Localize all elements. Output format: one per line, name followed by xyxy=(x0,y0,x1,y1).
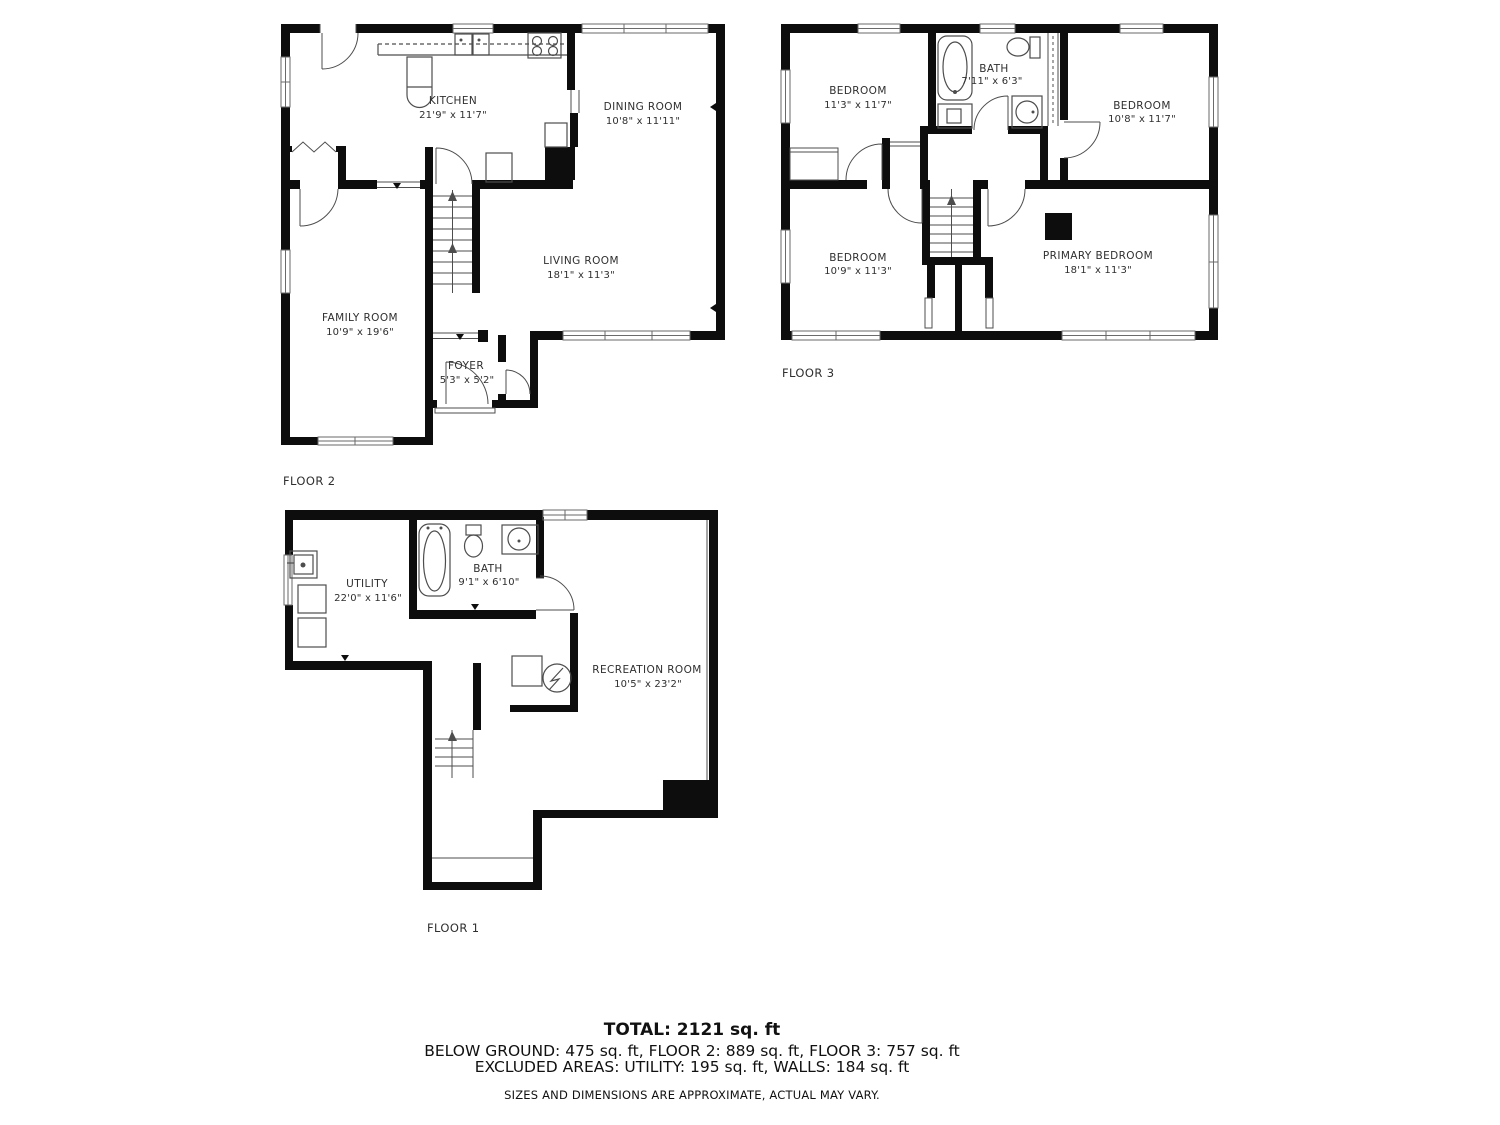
door-arc-bedroom-bottom-left xyxy=(888,189,922,223)
room-dims-bedroom-2: 10'8" x 11'7" xyxy=(1108,114,1176,125)
room-dims-living-room: 18'1" x 11'3" xyxy=(547,270,615,281)
door-arc-bedroom-top-left xyxy=(846,144,882,180)
accordion-closet-doors xyxy=(292,142,336,152)
room-label-family-room: FAMILY ROOM xyxy=(322,312,398,324)
chimney-floor2 xyxy=(545,147,575,180)
floor-2-walls xyxy=(281,24,725,445)
stairs-up-arrow xyxy=(448,243,457,253)
dryer-icon xyxy=(298,618,326,647)
sink-icon xyxy=(502,525,538,554)
counter-icon xyxy=(545,123,567,147)
room-dims-kitchen: 21'9" x 11'7" xyxy=(419,110,487,121)
door-arc-stair-hall xyxy=(436,148,472,184)
water-heater-icon xyxy=(543,664,571,692)
bathtub-icon xyxy=(938,36,972,100)
room-label-recreation-room: RECREATION ROOM xyxy=(592,664,701,676)
room-label-dining-room: DINING ROOM xyxy=(604,101,683,113)
floor-2-label: FLOOR 2 xyxy=(283,474,335,488)
room-label-bath-3: BATH xyxy=(979,63,1008,75)
room-dims-foyer: 5'3" x 5'2" xyxy=(440,375,495,386)
stairs-up-arrow xyxy=(448,731,457,741)
floor-3-stairs xyxy=(930,189,973,257)
room-label-primary-bedroom: PRIMARY BEDROOM xyxy=(1043,250,1153,262)
furnace-icon xyxy=(512,656,542,686)
door-arc-primary-bedroom xyxy=(988,189,1025,226)
summary-total: TOTAL: 2121 sq. ft xyxy=(0,1020,1384,1040)
hall-closet-front xyxy=(890,142,920,146)
bedroom-closet xyxy=(790,148,838,180)
summary-excluded-areas: EXCLUDED AREAS: UTILITY: 195 sq. ft, WAL… xyxy=(0,1058,1384,1076)
door-arc-bedroom-right xyxy=(1064,122,1100,158)
floor-3-plan: BEDROOM 11'3" x 11'7" BATH 7'11" x 6'3" … xyxy=(781,24,1218,380)
room-dims-bedroom-3: 10'9" x 11'3" xyxy=(824,266,892,277)
room-label-bath-1: BATH xyxy=(473,563,502,575)
summary-disclaimer: SIZES AND DIMENSIONS ARE APPROXIMATE, AC… xyxy=(0,1088,1384,1102)
floor-1-label: FLOOR 1 xyxy=(427,921,479,935)
floorplan-page: KITCHEN 21'9" x 11'7" DINING ROOM 10'8" … xyxy=(0,0,1500,1125)
room-dims-primary-bedroom: 18'1" x 11'3" xyxy=(1064,265,1132,276)
room-dims-recreation-room: 10'5" x 23'2" xyxy=(614,679,682,690)
washer-icon xyxy=(298,585,326,613)
toilet-icon xyxy=(1007,37,1040,58)
floor-3-label: FLOOR 3 xyxy=(782,366,834,380)
bathtub-icon xyxy=(419,524,450,596)
chimney-floor1 xyxy=(663,780,718,818)
door-arc-kitchen-entry xyxy=(322,33,358,69)
closet-door-panel xyxy=(986,298,993,328)
toilet-icon xyxy=(465,525,483,557)
sink-icon xyxy=(1012,96,1042,128)
room-dims-utility: 22'0" x 11'6" xyxy=(334,593,402,604)
vanity-icon xyxy=(938,104,972,128)
door-arc-bath xyxy=(974,96,1008,130)
room-label-bedroom-1: BEDROOM xyxy=(829,85,887,97)
room-label-bedroom-2: BEDROOM xyxy=(1113,100,1171,112)
room-label-utility: UTILITY xyxy=(346,578,388,590)
floorplan-canvas: KITCHEN 21'9" x 11'7" DINING ROOM 10'8" … xyxy=(0,0,1500,1125)
floor-2-plan: KITCHEN 21'9" x 11'7" DINING ROOM 10'8" … xyxy=(281,24,725,488)
room-dims-bedroom-1: 11'3" x 11'7" xyxy=(824,100,892,111)
room-dims-bath-3: 7'11" x 6'3" xyxy=(961,76,1022,87)
room-label-living-room: LIVING ROOM xyxy=(543,255,619,267)
room-dims-dining-room: 10'8" x 11'11" xyxy=(606,116,680,127)
pantry-cabinet-icon xyxy=(486,153,512,182)
door-arc-foyer-closet xyxy=(506,370,530,394)
floor-2-stairs xyxy=(433,190,472,293)
room-label-kitchen: KITCHEN xyxy=(429,95,477,107)
room-dims-family-room: 10'9" x 19'6" xyxy=(326,327,394,338)
closet-door-panel xyxy=(925,298,932,328)
door-arc-bath-1 xyxy=(540,576,574,610)
floor-1-plan: UTILITY 22'0" x 11'6" BATH 9'1" x 6'10" … xyxy=(284,510,718,935)
door-arc-family-room xyxy=(300,189,338,226)
room-label-bedroom-3: BEDROOM xyxy=(829,252,887,264)
floor-2-kitchen-fixtures xyxy=(378,33,567,182)
floor-1-stairs xyxy=(435,730,473,778)
stairs-up-arrow xyxy=(947,195,956,205)
stove-icon xyxy=(528,33,561,58)
room-dims-bath-1: 9'1" x 6'10" xyxy=(458,577,519,588)
floor-1-doors xyxy=(540,576,574,610)
floor-2-windows xyxy=(281,24,708,445)
floor-2-ticks xyxy=(393,103,716,340)
floor-2-doors xyxy=(292,33,530,404)
chimney-floor3 xyxy=(1045,213,1072,240)
room-label-foyer: FOYER xyxy=(448,360,484,372)
